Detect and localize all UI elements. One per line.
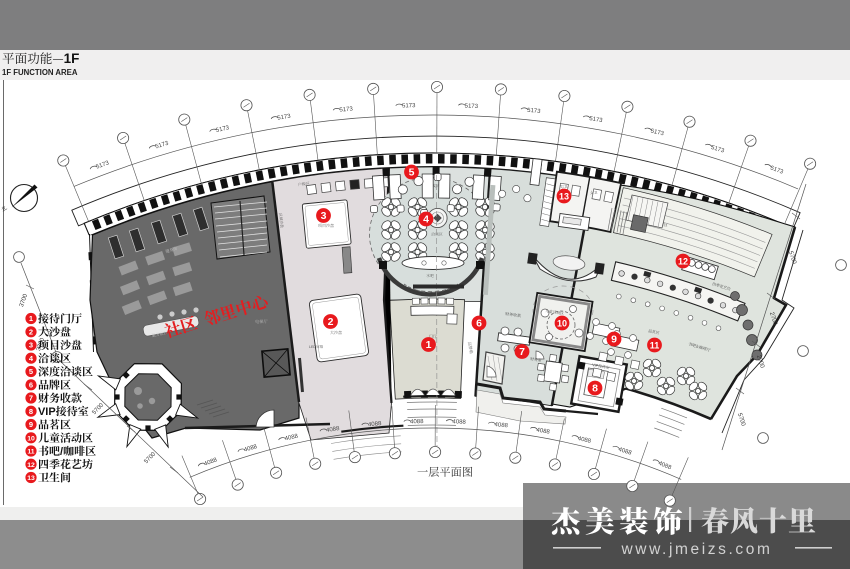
svg-text:5: 5 <box>409 167 415 179</box>
svg-text:5173: 5173 <box>710 145 725 155</box>
svg-text:9: 9 <box>611 334 617 346</box>
svg-text:10: 10 <box>557 319 567 329</box>
svg-text:5173: 5173 <box>589 116 604 124</box>
svg-text:1F: 1F <box>64 51 80 66</box>
svg-text:12: 12 <box>678 257 688 267</box>
svg-text:11: 11 <box>650 341 660 351</box>
svg-text:5173: 5173 <box>769 165 784 176</box>
svg-text:5173: 5173 <box>527 108 542 115</box>
svg-text:4088: 4088 <box>618 447 633 457</box>
svg-text:10: 10 <box>27 435 35 442</box>
svg-text:5700: 5700 <box>736 412 746 427</box>
svg-text:3: 3 <box>321 210 327 222</box>
svg-text:1F FUNCTION AREA: 1F FUNCTION AREA <box>2 68 78 77</box>
svg-text:5173: 5173 <box>155 141 170 151</box>
svg-text:4088: 4088 <box>203 457 218 468</box>
svg-text:5173: 5173 <box>465 104 479 111</box>
svg-text:P: P <box>48 406 55 418</box>
svg-text:11: 11 <box>27 449 34 456</box>
svg-text:4088: 4088 <box>577 436 592 445</box>
svg-text:4088: 4088 <box>452 419 466 426</box>
svg-text:4088: 4088 <box>410 419 424 425</box>
svg-text:5: 5 <box>29 367 33 376</box>
svg-text:8: 8 <box>29 407 33 416</box>
svg-text:1: 1 <box>29 314 33 323</box>
svg-text:5173: 5173 <box>339 106 354 113</box>
svg-text:6: 6 <box>476 318 482 330</box>
svg-text:1: 1 <box>426 339 432 351</box>
svg-text:8: 8 <box>592 383 598 395</box>
svg-text:2: 2 <box>328 316 334 328</box>
svg-text:5173: 5173 <box>402 103 416 109</box>
svg-text:7: 7 <box>29 394 33 403</box>
svg-text:5173: 5173 <box>215 125 230 134</box>
svg-text:2: 2 <box>29 327 33 336</box>
svg-text:4088: 4088 <box>657 461 672 472</box>
svg-text:4088: 4088 <box>494 422 509 429</box>
svg-text:www.jmeizs.com: www.jmeizs.com <box>621 541 773 558</box>
svg-text:/: / <box>60 446 63 458</box>
svg-text:4088: 4088 <box>536 428 551 436</box>
svg-text:9: 9 <box>29 420 33 429</box>
svg-text:3700: 3700 <box>19 293 29 308</box>
svg-text:13: 13 <box>27 475 35 482</box>
svg-text:4088: 4088 <box>243 444 258 454</box>
svg-text:5173: 5173 <box>277 114 292 122</box>
svg-text:D: D <box>313 345 316 349</box>
svg-text:12: 12 <box>27 462 35 469</box>
svg-text:4: 4 <box>423 214 429 226</box>
svg-text:13: 13 <box>559 192 569 202</box>
svg-text:5173: 5173 <box>650 128 665 137</box>
svg-text:7: 7 <box>519 346 525 358</box>
svg-text:5700: 5700 <box>143 451 157 465</box>
svg-text:6: 6 <box>29 380 33 389</box>
svg-text:5173: 5173 <box>95 160 110 171</box>
svg-text:3: 3 <box>29 341 33 350</box>
svg-text:4088: 4088 <box>284 433 299 442</box>
